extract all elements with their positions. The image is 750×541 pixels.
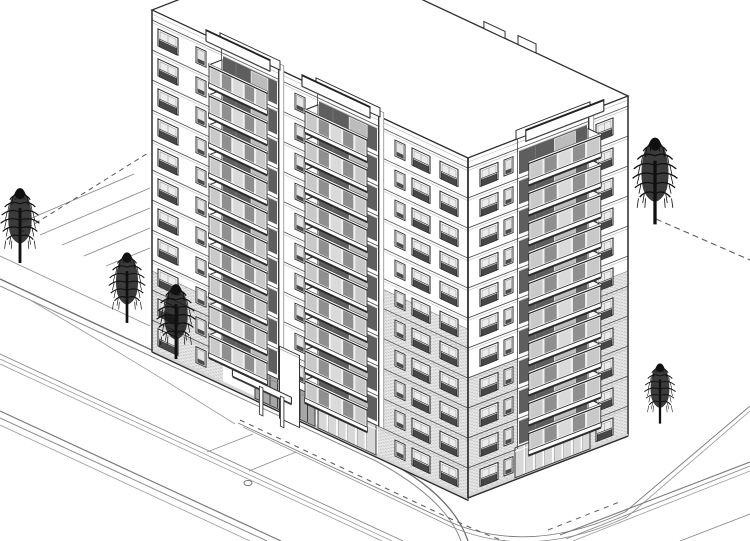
balcony-stack bbox=[206, 26, 284, 394]
manhole bbox=[244, 480, 252, 485]
tree bbox=[633, 138, 678, 225]
tree bbox=[644, 363, 675, 423]
right-facade bbox=[468, 87, 628, 498]
balcony-stack bbox=[302, 71, 384, 441]
building-rendering bbox=[0, 0, 750, 541]
architectural-rendering-stage bbox=[0, 0, 750, 541]
balcony-stack bbox=[516, 96, 604, 461]
tree bbox=[1, 188, 40, 263]
